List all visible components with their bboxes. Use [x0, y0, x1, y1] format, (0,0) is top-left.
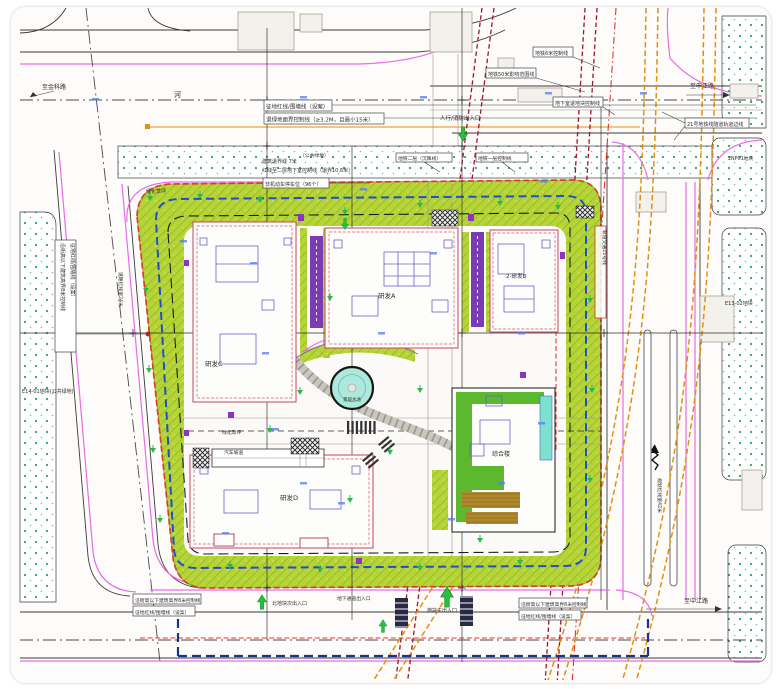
building-label: 研发A	[378, 291, 396, 300]
parcel-e14-01	[20, 212, 56, 602]
lawn-south-label: 绿化草坪	[222, 429, 241, 436]
tram-platform	[644, 330, 651, 586]
building-label: 综合楼	[492, 450, 510, 458]
river-label: 河	[174, 91, 181, 99]
row-42-label: 规划红线宽42米	[656, 478, 663, 513]
red-line-west-label: 征地红线/围墙线（设案）	[69, 243, 76, 300]
to-zhongjiang-label: 至中江路	[684, 597, 708, 605]
parcel-se-corner	[728, 545, 766, 662]
bike-parking-label: 非机动车停车位（96个）	[265, 181, 321, 188]
north-sub-entry-label: 北地块次出入口	[272, 600, 307, 607]
road-crosswalk-block	[395, 598, 408, 628]
parcel-ne-corner	[722, 16, 766, 128]
metro-21-track-label: 21号地铁线隧道轨道边线	[687, 121, 743, 128]
parcel-e13-label: E13-02地块	[725, 300, 753, 307]
lawn-north-label: 绿化草坪	[146, 188, 166, 195]
green-setback-label: 退绿地面界控制线（≥3.2M，且最小15米）	[266, 116, 374, 124]
north-sub-entry-arrow	[258, 595, 267, 609]
metro-l2-label: 地铁二层（沉降线）	[398, 155, 441, 162]
hatch-block	[432, 210, 458, 226]
parcel-np01-label: 2NP01地块	[728, 155, 753, 162]
road-crosswalk-block	[460, 596, 473, 626]
row-24-label: 道路红线宽24米	[117, 272, 124, 307]
height-8m-south-left-label: 沿街高以下建筑高界8米控制线	[135, 597, 201, 604]
building-rd-a: 研发A	[325, 228, 458, 348]
building-label: 研发C	[205, 359, 223, 368]
metro21-corridor-label: 轨道交通21号线	[601, 230, 608, 265]
building-label: 研发D	[280, 493, 298, 502]
building-rd-d: 研发D	[190, 455, 373, 548]
building-rd-c: 研发C	[193, 222, 296, 402]
site-plan-drawing: 研发C 研发A 2-研发B 研发D	[0, 0, 781, 689]
pool-label: 景观水池	[343, 396, 361, 403]
public-green-label: （公共绿地）	[300, 152, 329, 159]
to-shenjiang-label: 至申江路	[690, 82, 714, 90]
entry-arrow	[379, 620, 387, 633]
red-line-top-label: 征地红线/围墙线（设案）	[266, 103, 328, 111]
setback-7m-label: 建筑退界线 7米	[262, 158, 297, 165]
parcel-np01	[712, 138, 766, 215]
parcel-e13-02	[722, 228, 766, 480]
height-8m-west-label: 沿街高以下建筑高界8米控制线	[59, 243, 66, 311]
main-entry-label: 地块主出入口	[427, 607, 457, 614]
height-8m-south-right-label: 沿街高以下建筑高界8米控制线	[521, 601, 587, 608]
hatch-block	[291, 438, 319, 454]
landscape-pool: 景观水池	[331, 367, 373, 409]
parcel-e14-label: E14-01地块(公共绿地)	[22, 388, 74, 395]
metro-50m-label: 地铁50米影响范围线	[488, 71, 534, 78]
car-ramp-label: 汽车坡道	[224, 449, 243, 456]
ped-fire-entry-label: 人行/消防出入口	[440, 114, 480, 122]
pedestrian-entry-arrow	[459, 127, 468, 141]
basement-setback-label: 地下室退地块控制线	[555, 100, 600, 107]
basement-l2-setback-label: 红线至二层地下室控制线（退界10.6米）	[262, 167, 353, 174]
hatch-block	[576, 206, 594, 218]
metro-6m-label: 地铁6米控制线	[535, 50, 568, 57]
metro-l1-label: 地铁一层控制线	[478, 155, 512, 162]
red-line-south-right-label: 征地红线/围墙线（设案）	[521, 613, 575, 620]
to-jinke-label: 至金科路	[42, 83, 66, 91]
building-rd-b: 2-研发B	[490, 230, 558, 332]
building-label: 2-研发B	[506, 272, 526, 280]
building-complex: 综合楼	[452, 388, 555, 532]
red-line-south-left-label: 征地红线/围墙线（设案）	[135, 609, 189, 616]
underpass-label: 地下通道出入口	[337, 595, 371, 602]
